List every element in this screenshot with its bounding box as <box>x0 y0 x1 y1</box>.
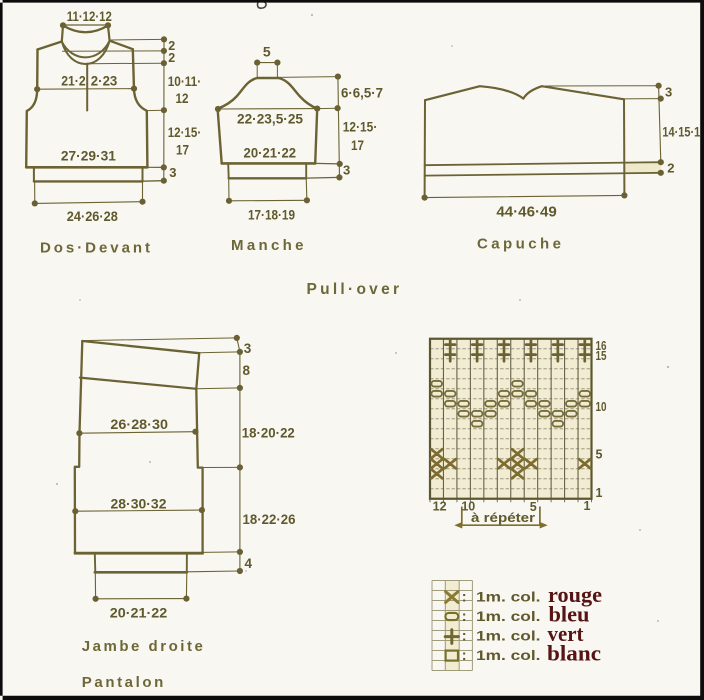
svg-text:18·20·22: 18·20·22 <box>242 425 295 440</box>
svg-text:1m. col.: 1m. col. <box>476 647 541 663</box>
svg-text:12·15·: 12·15· <box>168 125 202 140</box>
svg-text:10: 10 <box>596 400 607 414</box>
svg-text::: : <box>462 609 467 625</box>
svg-text:26·28·30: 26·28·30 <box>110 417 168 432</box>
svg-text:5: 5 <box>263 44 271 60</box>
svg-text:3: 3 <box>343 163 350 178</box>
svg-text:12·15·: 12·15· <box>343 120 378 135</box>
svg-text:12: 12 <box>176 91 189 106</box>
svg-text:10·11·: 10·11· <box>168 74 202 89</box>
svg-text:2: 2 <box>667 161 674 176</box>
svg-text:22·23,5·25: 22·23,5·25 <box>237 110 303 126</box>
svg-text:3: 3 <box>169 165 176 180</box>
svg-text:14·15·16: 14·15·16 <box>662 125 704 140</box>
svg-text:2·23: 2·23 <box>91 72 118 88</box>
svg-text:20·21·22: 20·21·22 <box>110 605 168 620</box>
svg-text:21·2: 21·2 <box>61 72 86 88</box>
svg-text::: : <box>462 648 467 664</box>
svg-text:4: 4 <box>245 556 253 571</box>
svg-text:5: 5 <box>596 447 603 461</box>
svg-text:Dos·Devant: Dos·Devant <box>40 240 150 257</box>
svg-text:20·21·22: 20·21·22 <box>244 145 297 161</box>
svg-text:17·18·19: 17·18·19 <box>248 207 295 223</box>
svg-text:à répéter: à répéter <box>471 510 535 525</box>
svg-text:3: 3 <box>244 341 252 356</box>
svg-text:44·46·49: 44·46·49 <box>496 204 557 221</box>
svg-text:17: 17 <box>176 143 189 158</box>
svg-text:Pull·over: Pull·over <box>307 281 400 298</box>
svg-text:1: 1 <box>596 486 603 500</box>
svg-text::: : <box>462 589 467 605</box>
svg-text:2: 2 <box>168 51 175 65</box>
svg-text:1m. col.: 1m. col. <box>476 589 541 605</box>
svg-text:27·29·31: 27·29·31 <box>61 147 116 163</box>
svg-text:6·6,5·7: 6·6,5·7 <box>341 85 383 100</box>
svg-text:8: 8 <box>243 363 251 378</box>
svg-text:11·12·12: 11·12·12 <box>67 8 112 24</box>
svg-text:17: 17 <box>351 138 364 153</box>
svg-text:18·22·26: 18·22·26 <box>243 512 296 527</box>
svg-text:3: 3 <box>665 84 672 99</box>
svg-text:1m. col.: 1m. col. <box>476 628 541 644</box>
svg-text:15: 15 <box>596 349 607 363</box>
svg-text:1: 1 <box>584 499 591 513</box>
svg-text:1m. col.: 1m. col. <box>476 608 541 624</box>
svg-text:blanc: blanc <box>547 641 601 666</box>
svg-text:28·30·32: 28·30·32 <box>111 497 167 512</box>
svg-text:24·26·28: 24·26·28 <box>67 208 118 224</box>
svg-text:12: 12 <box>433 499 447 513</box>
svg-text::: : <box>462 628 467 644</box>
